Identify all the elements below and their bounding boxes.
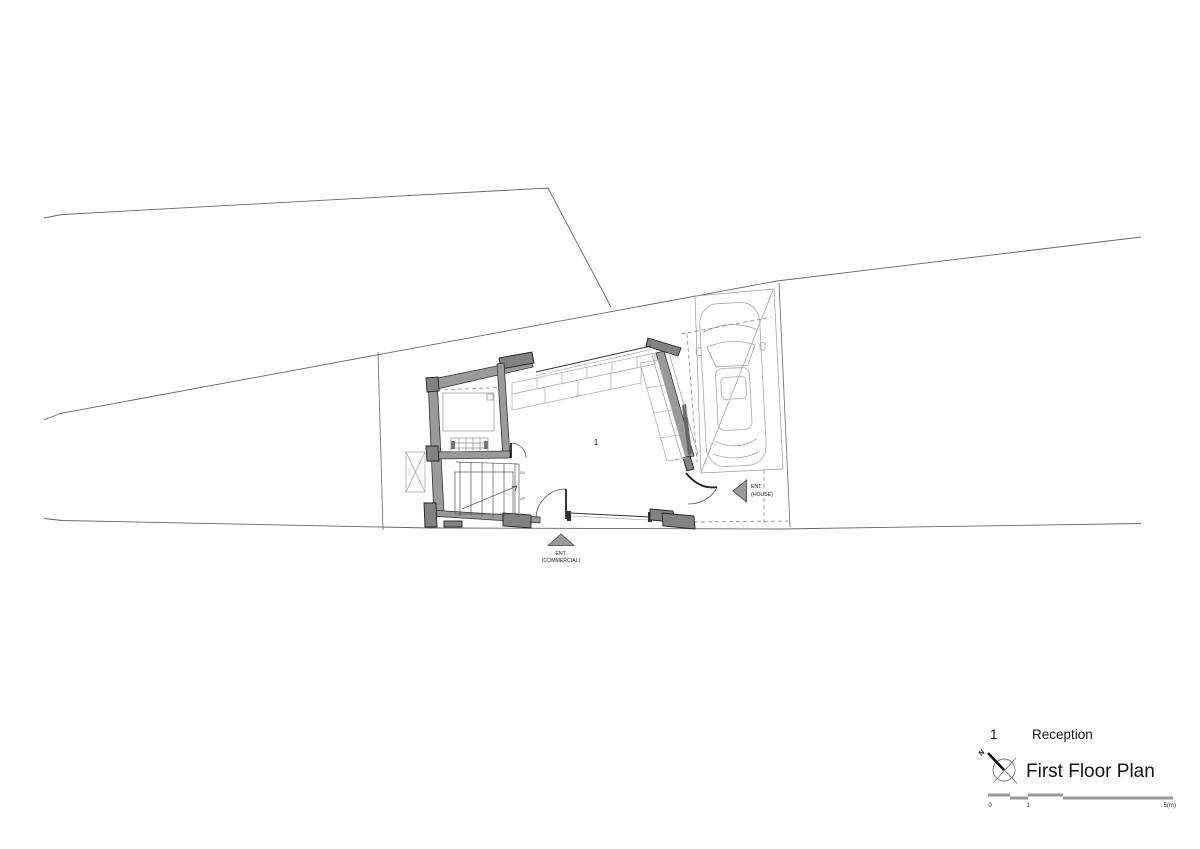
entrance-commercial-line1: ENT.: [555, 551, 566, 557]
shopfront-end-left: [567, 511, 571, 521]
scale-bar: 0 1 5(m): [988, 794, 1176, 810]
drawing-title: First Floor Plan: [1026, 761, 1155, 782]
scale-label-0: 0: [988, 803, 992, 809]
lightwell-shaft: [406, 452, 425, 492]
street-edge-line: [44, 519, 1141, 530]
house-entrance-door: [686, 473, 717, 504]
north-arrow-icon: N: [978, 749, 1017, 784]
upper-site-boundary: [44, 237, 1141, 420]
scale-label-5m: 5(m): [1164, 803, 1176, 809]
room-dashed-line: [437, 388, 500, 391]
stair-label-bottom: UP: [520, 497, 525, 501]
bench-row1-dividers: [537, 357, 637, 389]
inner-vertical-wall: [497, 363, 510, 458]
upper-room: [443, 393, 494, 452]
shaft-cross: [406, 452, 425, 492]
entrance-house-line1: ENT.: [751, 484, 762, 490]
legend-room-name: Reception: [1032, 727, 1093, 742]
stair-room-door: [511, 443, 526, 458]
entrance-house-marker: ENT. (HOUSE): [733, 480, 773, 502]
stair-label-top: DN: [520, 471, 525, 475]
entrance-house-arrow-icon: [733, 480, 747, 502]
car-plan-icon: [694, 301, 771, 467]
north-neighbor-boundary: [44, 188, 611, 307]
left-wall-pier-mid: [426, 446, 439, 461]
stair-top-edge: [456, 462, 519, 464]
building-walls: [424, 338, 698, 529]
floor-plan-sheet: DN UP 1 ENT. (COMMERCIAL) ENT.: [0, 0, 1200, 849]
plot-right-edge: [779, 283, 790, 527]
entrance-house-line2: (HOUSE): [751, 492, 773, 498]
entrance-commercial-arrow-icon: [548, 534, 574, 546]
left-wall-pier-top: [426, 377, 439, 392]
room-corner-detail: [487, 394, 493, 400]
radiator: [451, 438, 488, 452]
commercial-entrance-door: [536, 489, 566, 519]
plot-left-edge: [378, 352, 383, 530]
legend: 1 Reception N First Floor Plan 0 1 5(m): [978, 727, 1176, 809]
legend-room-number: 1: [990, 727, 998, 742]
parking-bay-diagonal: [701, 290, 773, 472]
room-inner-outline: [443, 393, 494, 431]
scale-label-1: 1: [1026, 803, 1030, 809]
parking-bay: [694, 289, 783, 473]
staircase: DN UP: [455, 462, 525, 517]
stair-direction-arrow: [462, 486, 517, 509]
upper-floor-dashed-line: [681, 317, 772, 334]
bench-seating: [512, 353, 686, 461]
stair-treads: [460, 462, 515, 517]
bottom-mid-pier: [503, 513, 531, 528]
top-glazing-inner: [536, 350, 651, 376]
north-letter: N: [978, 749, 986, 758]
bottomleft-corner-pier: [424, 503, 437, 527]
entrance-commercial-line2: (COMMERCIAL): [542, 558, 581, 564]
bottomright-pier-2: [662, 513, 695, 529]
room-number-label: 1: [594, 437, 599, 447]
threshold-block: [444, 521, 462, 527]
entrance-commercial-marker: ENT. (COMMERCIAL): [542, 534, 581, 564]
floor-plan-drawing: DN UP 1 ENT. (COMMERCIAL) ENT.: [0, 0, 1200, 849]
bench-row2: [512, 367, 641, 410]
threshold-dashed-line: [694, 521, 788, 522]
bench-row2-dividers: [545, 373, 611, 403]
